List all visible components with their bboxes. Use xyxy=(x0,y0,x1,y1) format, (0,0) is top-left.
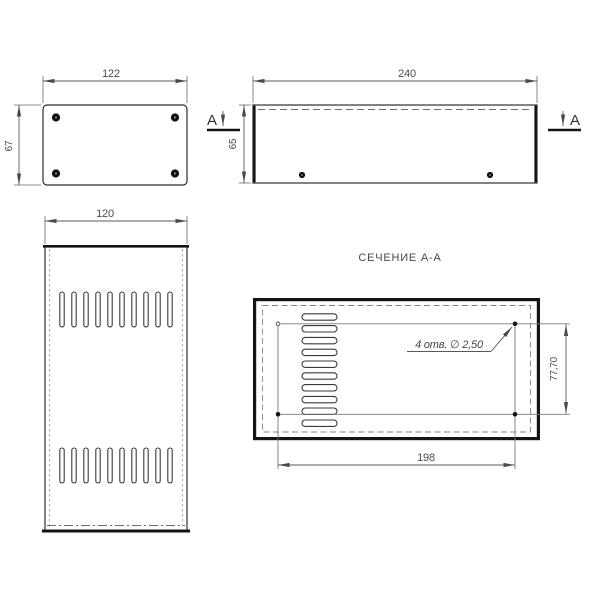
drawing-canvas: 122 67 240 xyxy=(0,0,600,600)
dim-text-122: 122 xyxy=(102,68,120,80)
vent-slot xyxy=(302,385,337,391)
dimension-height-65: 65 xyxy=(228,105,251,183)
corner-screw xyxy=(52,169,60,177)
corner-screw xyxy=(171,113,179,121)
section-view: СЕЧЕНИЕ А-А xyxy=(255,252,570,469)
vent-slot xyxy=(96,292,100,327)
vent-slot xyxy=(60,448,64,483)
vent-slot xyxy=(96,448,100,483)
vent-slot xyxy=(302,326,337,332)
front-view: 120 xyxy=(42,208,190,531)
bottom-screw xyxy=(299,172,305,178)
dimension-width-240: 240 xyxy=(253,68,537,103)
vent-slot xyxy=(302,420,337,426)
dimension-width-198: 198 xyxy=(278,452,515,465)
hole-mark xyxy=(276,412,281,417)
hole-mark xyxy=(513,412,518,417)
dimension-height-7770: 77,70 xyxy=(549,325,566,414)
bottom-screw xyxy=(487,172,493,178)
vent-slot xyxy=(156,448,160,483)
vent-slot xyxy=(132,292,136,327)
dim-text-240: 240 xyxy=(398,68,416,80)
vent-slot xyxy=(156,292,160,327)
vent-slot xyxy=(108,292,112,327)
vent-slot xyxy=(132,448,136,483)
hole-mark xyxy=(513,322,518,327)
vent-slot xyxy=(302,349,337,355)
vent-slot xyxy=(120,448,124,483)
cut-letter-left: A xyxy=(207,112,217,129)
dim-text-120: 120 xyxy=(96,208,114,220)
vent-slot xyxy=(144,292,148,327)
corner-screw xyxy=(171,169,179,177)
top-view: 122 67 xyxy=(4,68,187,185)
vent-slot xyxy=(72,448,76,483)
vent-slot xyxy=(302,361,337,367)
vent-slot xyxy=(108,448,112,483)
vent-slot xyxy=(72,292,76,327)
vent-slot xyxy=(168,448,172,483)
dim-text-198: 198 xyxy=(417,452,435,464)
vent-slot xyxy=(302,337,337,343)
dimension-height-67: 67 xyxy=(4,105,41,185)
vent-slot xyxy=(84,448,88,483)
section-outline xyxy=(255,300,539,439)
section-cut-mark-right: A xyxy=(548,111,581,130)
vent-slot xyxy=(144,448,148,483)
engineering-drawing: 122 67 240 xyxy=(0,0,600,600)
corner-screw xyxy=(52,113,60,121)
holes-note-text: 4 отв. ∅ 2,50 xyxy=(415,339,484,351)
section-cut-mark-left: A xyxy=(207,111,240,130)
dim-text-65: 65 xyxy=(228,138,239,149)
vent-slot xyxy=(302,396,337,402)
cut-letter-right: A xyxy=(570,112,580,129)
vent-slot xyxy=(84,292,88,327)
side-view-outline xyxy=(253,105,537,183)
front-view-outline xyxy=(45,246,187,531)
vent-slot xyxy=(302,373,337,379)
hole-mark xyxy=(276,322,280,326)
vent-slot xyxy=(168,292,172,327)
dimension-width-122: 122 xyxy=(43,68,187,103)
side-view: 240 65 A A xyxy=(207,68,581,183)
vent-slot xyxy=(60,292,64,327)
section-title: СЕЧЕНИЕ А-А xyxy=(358,252,441,264)
dimension-width-120: 120 xyxy=(45,208,187,244)
top-view-outline xyxy=(43,105,187,185)
dim-text-7770: 77,70 xyxy=(549,356,560,381)
vent-slot xyxy=(120,292,124,327)
vent-slot xyxy=(302,408,337,414)
dim-text-67: 67 xyxy=(4,140,15,151)
vent-slot xyxy=(302,314,337,320)
